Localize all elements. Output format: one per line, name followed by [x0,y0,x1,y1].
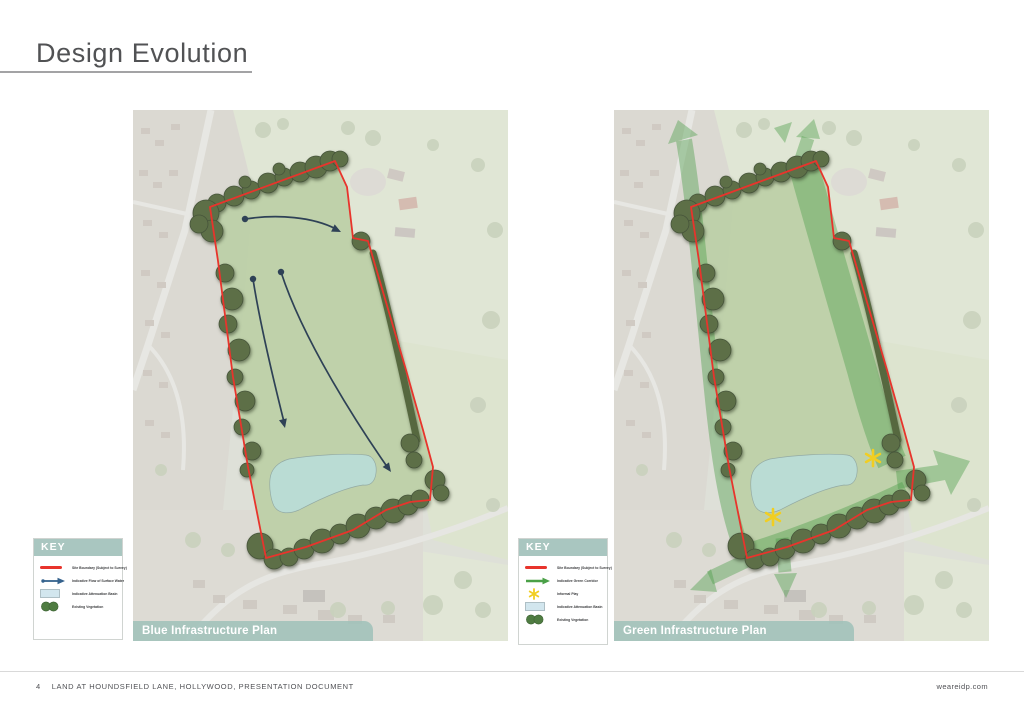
site-boundary-line-icon [40,566,62,569]
legend-row-site-boundary: Site Boundary (Subject to Survey) [525,561,604,574]
existing-vegetation-icon [525,614,547,625]
footer-divider [0,671,1024,672]
footer-document-title: LAND AT HOUNDSFIELD LANE, HOLLYWOOD, PRE… [52,682,354,691]
green-infrastructure-plan-panel: Green Infrastructure Plan [614,110,989,641]
attenuation-basin-icon [40,589,60,598]
legend-row-site-boundary: Site Boundary (Subject to Survey) [40,561,119,574]
legend-row-green-corridor: Indicative Green Corridor [525,574,604,587]
legend-row-existing-vegetation: Existing Vegetation [40,600,119,613]
caption-blue-infrastructure-plan: Blue Infrastructure Plan [133,621,373,641]
existing-vegetation-icon [40,601,62,612]
presentation-page: Design Evolution Blue Infrastructure Pla… [0,0,1024,725]
footer-website: weareidp.com [937,682,989,691]
green-infrastructure-plan-map [614,110,989,641]
legend-blue-infrastructure: KEY Site Boundary (Subject to Survey) In… [33,538,123,640]
title-underline [0,71,252,73]
legend-row-surface-water-flow: Indicative Flow of Surface Water [40,574,119,587]
legend-row-attenuation-basin: Indicative Attenuation Basin [525,600,604,613]
attenuation-basin-icon [525,602,545,611]
site-boundary-line-icon [525,566,547,569]
surface-water-flow-arrow-icon [40,577,66,585]
blue-infrastructure-plan-panel: Blue Infrastructure Plan [133,110,508,641]
legend-green-infrastructure: KEY Site Boundary (Subject to Survey) In… [518,538,608,645]
legend-header: KEY [34,539,122,556]
legend-row-existing-vegetation: Existing Vegetation [525,613,604,626]
page-title: Design Evolution [36,38,248,69]
footer-document-info: 4LAND AT HOUNDSFIELD LANE, HOLLYWOOD, PR… [36,682,354,691]
legend-header: KEY [519,539,607,556]
caption-green-infrastructure-plan: Green Infrastructure Plan [614,621,854,641]
legend-row-informal-play: Informal Play [525,587,604,600]
blue-infrastructure-plan-map [133,110,508,641]
green-corridor-arrow-icon [525,577,551,585]
page-number: 4 [36,682,41,691]
legend-row-attenuation-basin: Indicative Attenuation Basin [40,587,119,600]
informal-play-star-icon [525,588,547,600]
